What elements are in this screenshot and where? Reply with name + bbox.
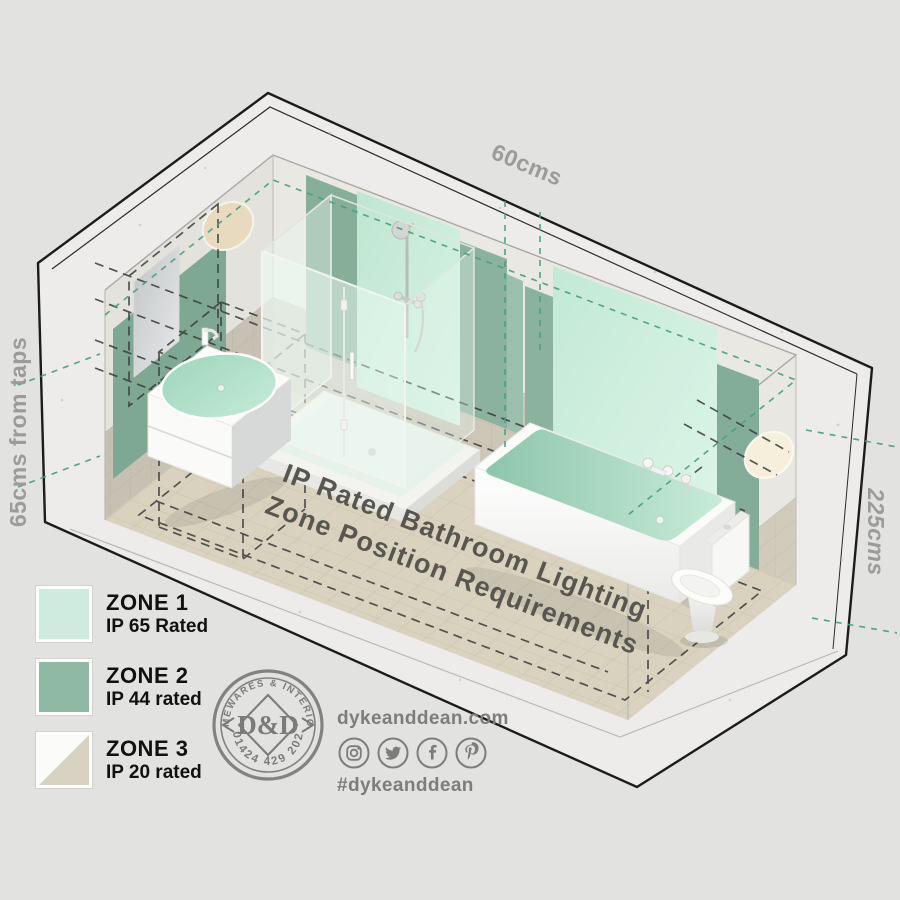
zone1-name: ZONE 1 [106,590,208,615]
dimension-right: 225cms [863,487,889,575]
social-block: dykeanddean.com #dykeanddean [337,708,509,797]
instagram-icon [337,736,371,770]
zone3-rating: IP 20 rated [106,761,202,785]
legend-item-zone1: ZONE 1 IP 65 Rated [36,586,208,642]
zone1-rating: IP 65 Rated [106,615,208,639]
dimension-top: 60cms [488,138,566,190]
logo-monogram: D&D [237,710,299,740]
website-url: dykeanddean.com [337,708,509,730]
zone2-name: ZONE 2 [106,663,202,688]
zone2-swatch [36,659,92,715]
legend-item-zone2: ZONE 2 IP 44 rated [36,659,208,715]
zone-legend: ZONE 1 IP 65 Rated ZONE 2 IP 44 rated ZO… [36,586,208,805]
legend-item-zone3: ZONE 3 IP 20 rated [36,732,208,788]
zone2-rating: IP 44 rated [106,688,202,712]
zone2-panel-shower-right2 [507,274,523,436]
shower-door-handle [350,352,354,380]
facebook-icon [415,736,449,770]
pinterest-icon [454,736,488,770]
infographic: IP Rated Bathroom Lighting Zone Position… [0,0,900,900]
dimension-left: 65cms from taps [5,337,31,527]
dyke-and-dean-logo: HOMEWARES & INTERIORS 01424 429 202 D&D [208,664,328,784]
hashtag: #dykeanddean [337,775,509,797]
twitter-icon [376,736,410,770]
zone1-swatch [36,586,92,642]
social-icons [337,736,509,770]
zone3-swatch [36,732,92,788]
zone3-name: ZONE 3 [106,736,202,761]
